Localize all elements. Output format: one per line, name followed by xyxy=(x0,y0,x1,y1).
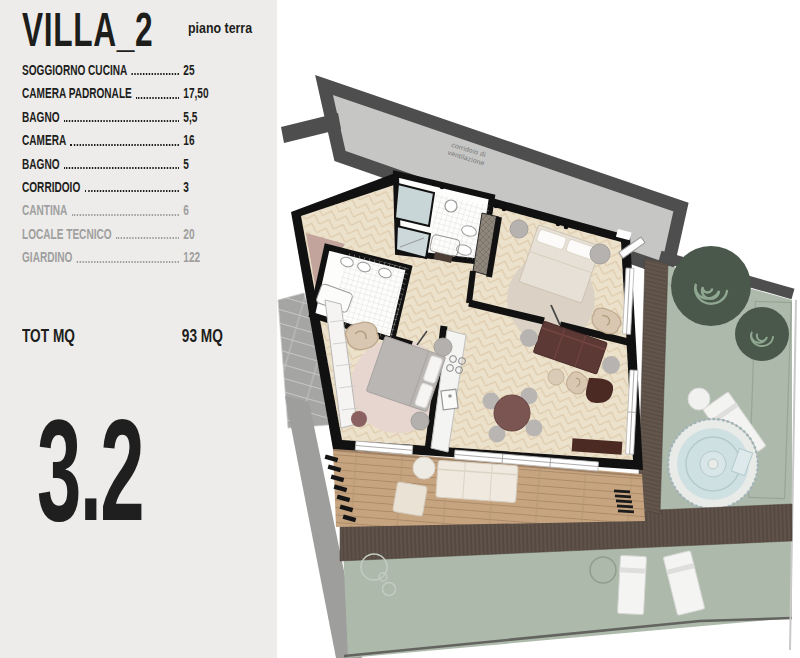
unit-number: 3.2 xyxy=(37,398,143,543)
room-row: CAMERA PADRONALE17,50 xyxy=(22,82,227,105)
pouf xyxy=(548,369,564,385)
leader-dots xyxy=(116,236,179,239)
room-value: 25 xyxy=(183,59,227,82)
hot-tub xyxy=(668,419,758,509)
room-value: 5,5 xyxy=(183,106,227,129)
room-label: BAGNO xyxy=(22,153,60,176)
garden-side-table xyxy=(688,388,710,410)
pouf xyxy=(351,411,367,427)
sink xyxy=(445,200,457,212)
room-row: GIARDINO122 xyxy=(22,246,227,269)
room-value: 6 xyxy=(183,199,227,222)
room-row: CANTINA6 xyxy=(22,199,227,222)
nightstand xyxy=(434,338,452,356)
total-row: TOT MQ 93 MQ xyxy=(22,325,252,347)
room-value: 122 xyxy=(183,246,227,269)
nightstand xyxy=(590,244,610,264)
leader-dots xyxy=(64,119,179,122)
leader-dots xyxy=(77,260,179,263)
room-value: 16 xyxy=(183,129,227,152)
room-row: SOGGIORNO CUCINA25 xyxy=(22,59,227,82)
pouf xyxy=(520,329,538,347)
room-value: 17,50 xyxy=(183,82,227,105)
room-label: CORRIDOIO xyxy=(22,176,80,199)
outdoor-table xyxy=(413,457,435,479)
kitchen-sink xyxy=(441,389,458,410)
floor-subtitle: piano terra xyxy=(188,19,252,37)
room-row: BAGNO5 xyxy=(22,153,227,176)
room-row: BAGNO5,5 xyxy=(22,106,227,129)
room-label: CANTINA xyxy=(22,199,67,222)
room-value: 20 xyxy=(183,223,227,246)
nightstand xyxy=(411,412,429,430)
room-label: CAMERA xyxy=(22,129,66,152)
info-panel: VILLA_2 piano terra SOGGIORNO CUCINA25 C… xyxy=(0,0,277,658)
page-title: VILLA_2 xyxy=(22,6,153,54)
outdoor-sofa xyxy=(436,460,518,502)
total-label: TOT MQ xyxy=(22,325,182,347)
spiral-bush-large xyxy=(671,246,751,326)
leader-dots xyxy=(71,143,179,146)
room-label: BAGNO xyxy=(22,106,60,129)
sun-lounger-1 xyxy=(618,555,647,614)
room-label: CAMERA PADRONALE xyxy=(22,82,132,105)
outdoor-pouf xyxy=(393,482,428,517)
nightstand xyxy=(510,220,528,238)
room-label: LOCALE TECNICO xyxy=(22,223,112,246)
room-value: 5 xyxy=(183,153,227,176)
leader-dots xyxy=(85,189,179,192)
leader-dots xyxy=(64,166,179,169)
room-label: SOGGIORNO CUCINA xyxy=(22,59,127,82)
room-row: CORRIDOIO3 xyxy=(22,176,227,199)
room-value: 3 xyxy=(183,176,227,199)
room-label: GIARDINO xyxy=(22,246,72,269)
pouf xyxy=(602,356,620,374)
room-row: LOCALE TECNICO20 xyxy=(22,223,227,246)
room-row: CAMERA16 xyxy=(22,129,227,152)
leader-dots xyxy=(72,213,179,216)
dining-table xyxy=(494,395,530,431)
total-value: 93 MQ xyxy=(182,325,223,347)
spiral-bush-small xyxy=(735,307,789,361)
room-list: SOGGIORNO CUCINA25 CAMERA PADRONALE17,50… xyxy=(22,59,307,270)
villa-floorplan-sheet: corridoio di ventilazione xyxy=(0,0,800,658)
leader-dots xyxy=(132,72,179,75)
leader-dots xyxy=(136,96,179,99)
